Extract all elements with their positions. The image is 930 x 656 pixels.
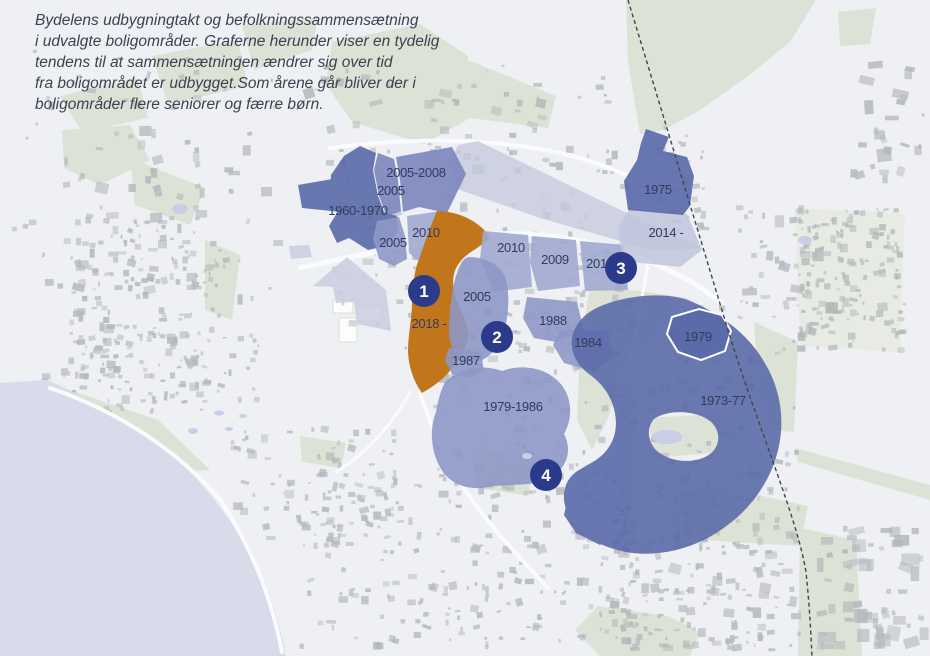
region-label-2014: 2014 - (648, 225, 683, 240)
region-label-2018: 2018 - (411, 316, 446, 331)
region-label-2010-a: 2010 (412, 225, 440, 240)
region-label-2009: 2009 (541, 252, 569, 267)
intro-line-1: Bydelens udbygningtakt og befolkningssam… (35, 10, 475, 31)
intro-line-3: tendens til at sammensætningen ændrer si… (35, 52, 475, 73)
region-label-2005-2008: 2005-2008 (386, 165, 446, 180)
map-marker-3[interactable]: 3 (605, 252, 637, 284)
region-label-2005-a: 2005 (377, 183, 405, 198)
svg-text:3: 3 (616, 259, 625, 278)
svg-text:2: 2 (492, 328, 501, 347)
svg-text:1: 1 (419, 282, 428, 301)
map-marker-2[interactable]: 2 (481, 321, 513, 353)
region-label-1987: 1987 (452, 353, 480, 368)
region-label-1988: 1988 (539, 313, 567, 328)
intro-line-2: i udvalgte boligområder. Graferne herund… (35, 31, 475, 52)
region-label-2010-b: 2010 (497, 240, 525, 255)
infographic-canvas: 1960-1970 2005-2008 2005 2010 2005 2018 … (0, 0, 930, 656)
svg-text:4: 4 (541, 466, 551, 485)
region-label-1975: 1975 (644, 182, 672, 197)
map-marker-1[interactable]: 1 (408, 275, 440, 307)
region-label-2005-c: 2005 (463, 289, 491, 304)
intro-line-4: fra boligområdet er udbygget.Som årene g… (35, 73, 475, 94)
region-label-1984: 1984 (574, 335, 602, 350)
region-label-1979-1986: 1979-1986 (483, 399, 543, 414)
region-label-1973-77: 1973-77 (700, 393, 746, 408)
region-label-1979: 1979 (684, 329, 712, 344)
region-label-1960-1970: 1960-1970 (328, 203, 388, 218)
intro-text: Bydelens udbygningtakt og befolkningssam… (35, 10, 475, 115)
region-label-2005-b: 2005 (379, 235, 407, 250)
map-marker-4[interactable]: 4 (530, 459, 562, 491)
intro-line-5: boligområder flere seniorer og færre bør… (35, 94, 475, 115)
